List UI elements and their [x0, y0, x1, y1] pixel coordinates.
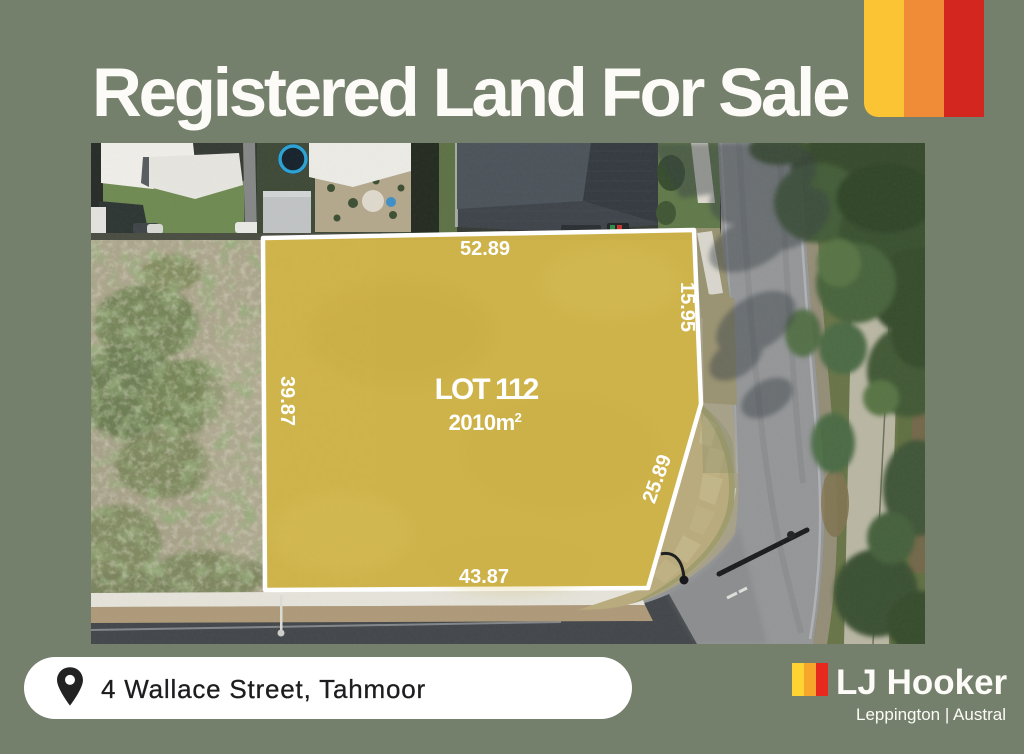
svg-text:15.95: 15.95: [676, 282, 698, 332]
svg-text:LOT 112: LOT 112: [435, 373, 539, 406]
svg-text:52.89: 52.89: [460, 238, 510, 260]
svg-text:39.87: 39.87: [276, 376, 298, 426]
svg-text:2010m2: 2010m2: [449, 410, 522, 435]
svg-text:43.87: 43.87: [459, 566, 509, 588]
